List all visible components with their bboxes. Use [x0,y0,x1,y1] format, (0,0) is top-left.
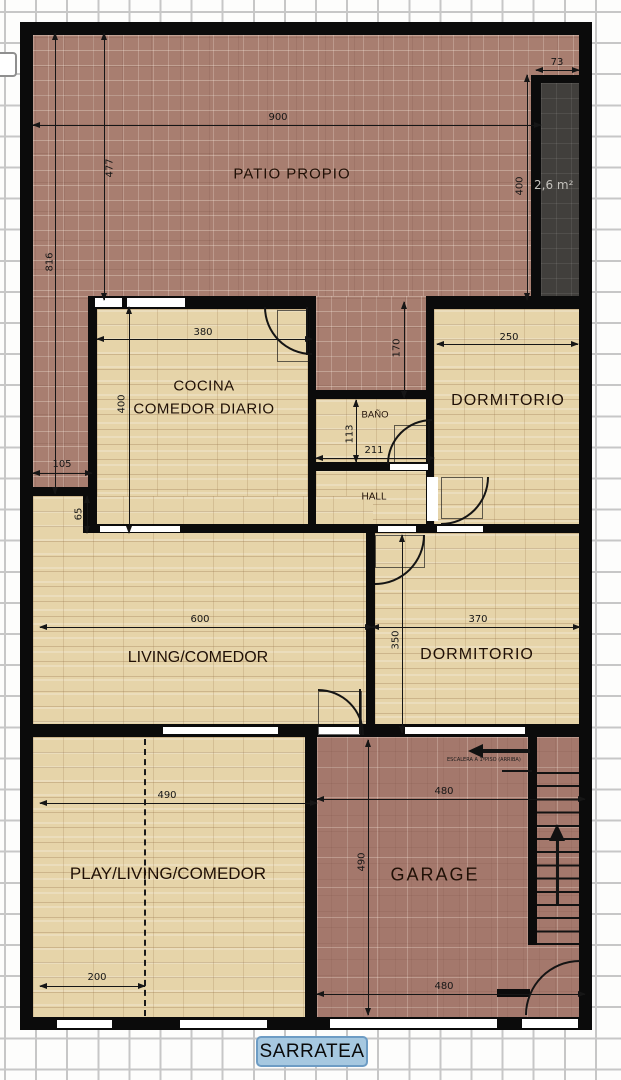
dim-label: 170 [392,338,403,357]
wall [308,390,434,399]
dim-line [33,473,92,474]
dim-label: 200 [87,972,106,983]
dim-label: 105 [52,459,71,470]
wall [528,737,537,945]
dim-line [536,70,579,71]
window [180,1020,267,1028]
dim-line [372,627,580,628]
room-label-garage: GARAGE [390,865,479,886]
window [127,298,185,307]
window [163,727,278,734]
room-label-bano: BAÑO [362,410,389,421]
dim-line [40,986,145,987]
dim-line [129,307,130,533]
wall [497,989,530,997]
wall [426,296,592,309]
dim-label: 113 [345,424,356,443]
dim-label: 477 [105,158,116,177]
door-opening [378,526,416,532]
dim-line [402,535,403,733]
dim-label: 490 [157,790,176,801]
stairs-up-arrow-head [549,824,565,841]
dim-line [368,740,369,1015]
room-label-hall: HALL [361,492,386,503]
stairs-direction-arrow-line [482,749,530,753]
floor-plan: ESCALERA A 1ºPISO (ARRIBA) 900 73 380 25… [0,0,621,1080]
patio-passage-floor [316,296,426,390]
dim-label: 490 [357,852,368,871]
window [405,727,525,734]
dim-label: 400 [117,394,128,413]
dim-label: 211 [364,445,383,456]
dim-label: 600 [190,614,209,625]
dim-line [87,496,88,533]
wall [531,75,579,83]
dim-label: 73 [551,57,564,68]
room-label-play: PLAY/LIVING/COMEDOR [70,864,266,884]
entry-door-opening [522,1019,578,1028]
room-label-cocina-2: COMEDOR DIARIO [133,401,274,418]
dim-label: 65 [74,508,85,521]
dim-line [317,994,585,995]
dim-label: 350 [391,630,402,649]
room-label-dormitorio-2: DORMITORIO [420,646,534,664]
dim-label: 480 [434,981,453,992]
stairs-note: ESCALERA A 1ºPISO (ARRIBA) [447,757,521,763]
stairs-up-arrow-line [556,840,559,904]
living-door-frame [318,691,362,735]
room-label-dormitorio-1: DORMITORIO [451,392,565,410]
dim-line [404,302,405,398]
dim-label: 380 [193,327,212,338]
wall [305,737,317,1030]
window [100,526,180,532]
dim-line [317,799,585,800]
dim-line [33,125,541,126]
dim-line [437,344,578,345]
dim-label: 816 [45,252,56,271]
wall [20,22,33,1030]
hall-dorm1-door-frame [441,477,483,519]
door-opening [427,477,438,521]
dim-line [316,458,434,459]
dim-label: 480 [434,786,453,797]
garage-door-opening [330,1019,497,1028]
room-label-cocina-1: COCINA [173,378,234,395]
dim-line [527,75,528,300]
window [437,526,483,532]
door-opening [390,464,428,470]
dim-line [356,400,357,462]
closet-area-label: 2,6 m² [534,178,573,192]
dim-label: 250 [499,332,518,343]
window [57,1020,112,1028]
dim-label: 900 [268,112,287,123]
room-label-patio: PATIO PROPIO [233,166,350,183]
stairs-direction-arrow-head [468,744,483,758]
street-name-badge[interactable]: SARRATEA [256,1036,368,1067]
street-name-label: SARRATEA [259,1041,364,1063]
dim-line [40,803,317,804]
stairs-leader-line [502,770,532,772]
dim-label: 400 [515,176,526,195]
dim-label: 370 [468,614,487,625]
edge-marker [0,52,17,77]
window [95,298,122,307]
room-label-living: LIVING/COMEDOR [128,649,268,667]
dim-line [40,627,372,628]
wall [366,533,375,737]
